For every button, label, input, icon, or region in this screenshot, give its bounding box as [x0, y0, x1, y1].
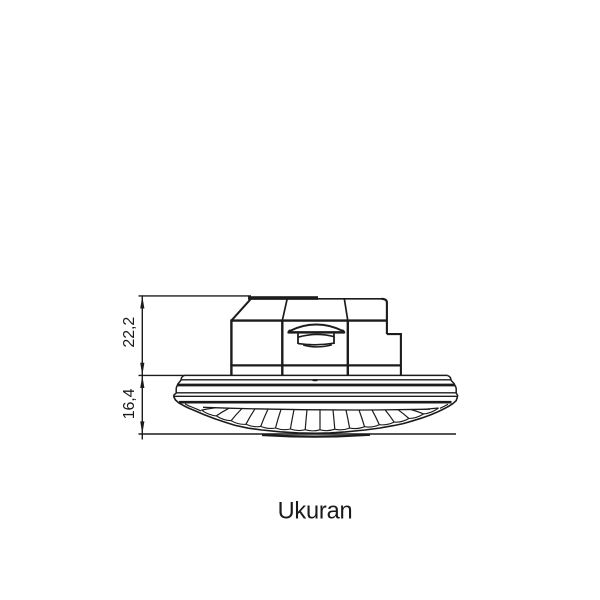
svg-text:Ukuran: Ukuran: [278, 499, 353, 525]
svg-text:16,4: 16,4: [121, 388, 138, 419]
svg-text:22,2: 22,2: [121, 317, 138, 348]
